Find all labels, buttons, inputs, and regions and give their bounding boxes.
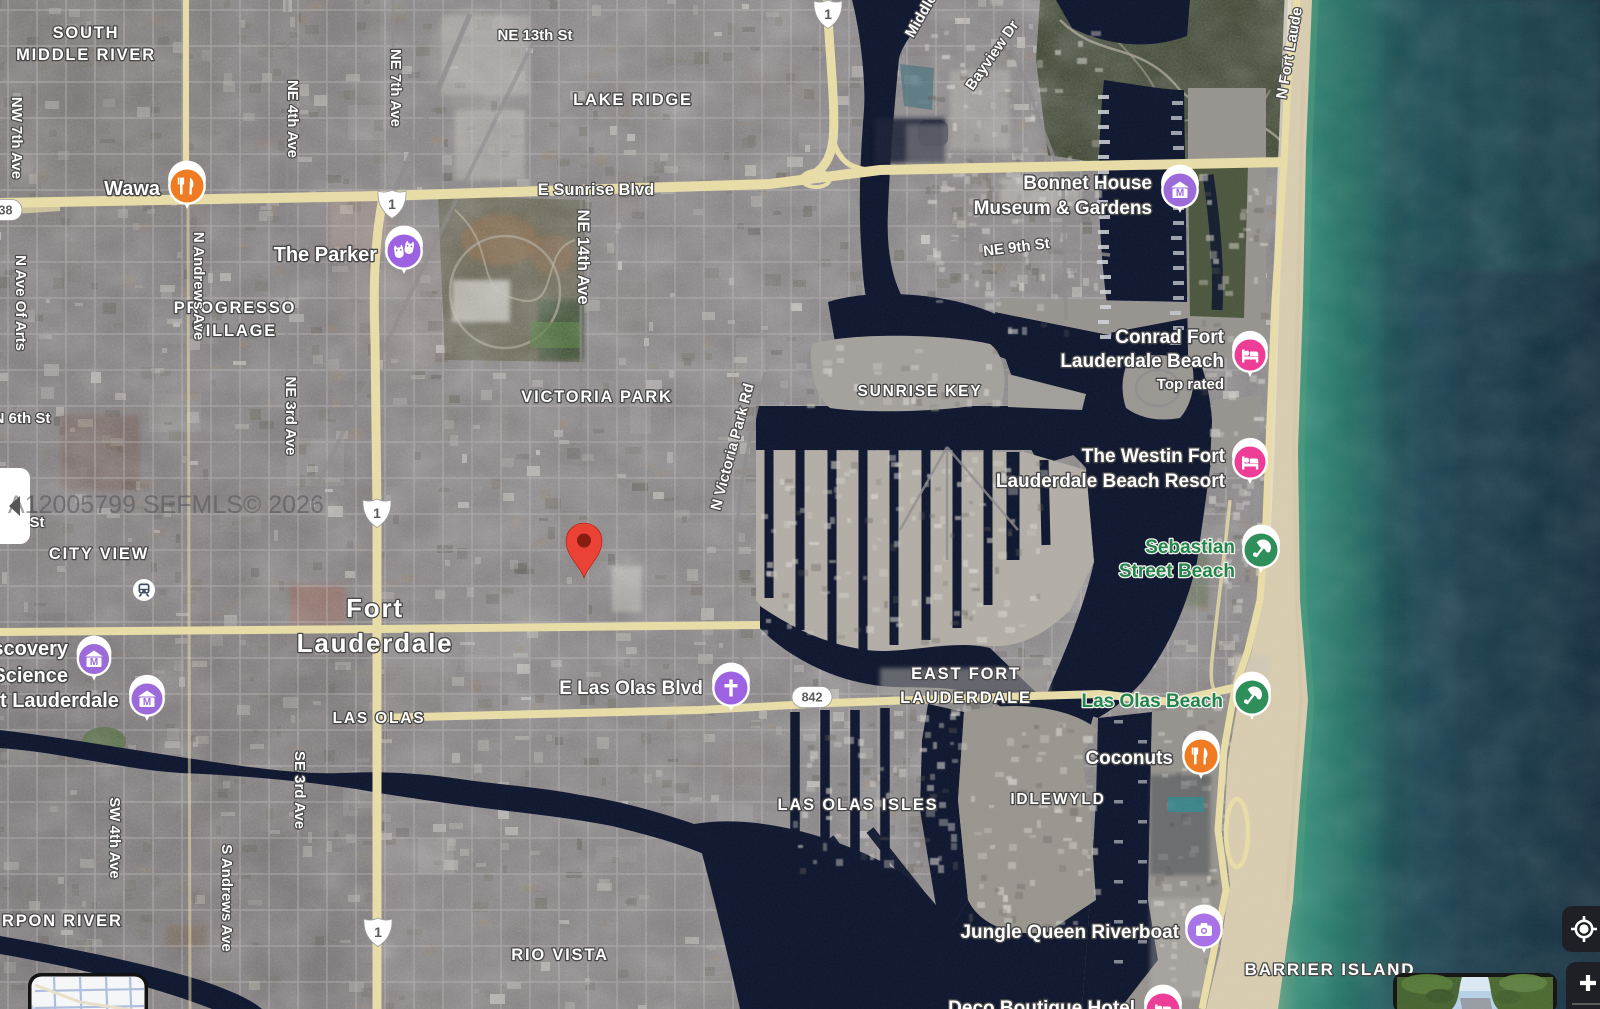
svg-text:NW 7th Ave: NW 7th Ave bbox=[8, 97, 25, 179]
svg-text:The Parker: The Parker bbox=[274, 244, 378, 266]
svg-text:1: 1 bbox=[374, 924, 382, 940]
svg-text:A1: A1 bbox=[8, 491, 39, 519]
svg-text:E Sunrise Blvd: E Sunrise Blvd bbox=[538, 181, 654, 199]
svg-text:EAST FORT: EAST FORT bbox=[911, 665, 1021, 683]
svg-text:SOUTH: SOUTH bbox=[53, 24, 120, 42]
svg-text:N Andrews Ave: N Andrews Ave bbox=[190, 232, 207, 340]
svg-text:A12005799 SEFMLS© 2026: A12005799 SEFMLS© 2026 bbox=[8, 491, 324, 519]
svg-text:RIO VISTA: RIO VISTA bbox=[511, 946, 608, 964]
svg-text:N 6th St: N 6th St bbox=[0, 410, 50, 427]
svg-text:Wawa: Wawa bbox=[104, 178, 161, 200]
svg-text:Jungle Queen Riverboat: Jungle Queen Riverboat bbox=[960, 922, 1179, 943]
svg-text:1: 1 bbox=[388, 196, 396, 212]
svg-text:1: 1 bbox=[824, 6, 832, 22]
svg-text:Lauderdale Beach Resort: Lauderdale Beach Resort bbox=[996, 471, 1226, 492]
svg-text:VICTORIA PARK: VICTORIA PARK bbox=[521, 388, 672, 406]
svg-text:E Las Olas Blvd: E Las Olas Blvd bbox=[559, 678, 703, 699]
svg-text:Street Beach: Street Beach bbox=[1119, 561, 1235, 582]
svg-text:Bonnet House: Bonnet House bbox=[1023, 173, 1152, 194]
svg-text:LAS OLAS ISLES: LAS OLAS ISLES bbox=[778, 796, 939, 814]
svg-text:BARRIER ISLAND: BARRIER ISLAND bbox=[1245, 960, 1416, 979]
svg-text:NE 4th Ave: NE 4th Ave bbox=[284, 80, 301, 158]
svg-text:M: M bbox=[143, 697, 151, 708]
svg-text:Lauderdale Beach: Lauderdale Beach bbox=[1060, 351, 1224, 372]
svg-text:Sebastian: Sebastian bbox=[1145, 537, 1235, 558]
svg-text:LAKE RIDGE: LAKE RIDGE bbox=[573, 91, 693, 109]
svg-text:NE 3rd Ave: NE 3rd Ave bbox=[282, 377, 299, 456]
svg-text:NE 14th Ave: NE 14th Ave bbox=[574, 209, 592, 304]
svg-text:S Andrews Ave: S Andrews Ave bbox=[218, 844, 235, 952]
svg-text:Museum & Gardens: Museum & Gardens bbox=[974, 198, 1152, 219]
svg-text:Top rated: Top rated bbox=[1157, 376, 1224, 393]
svg-text:SUNRISE KEY: SUNRISE KEY bbox=[858, 383, 983, 400]
svg-text:t Lauderdale: t Lauderdale bbox=[0, 690, 119, 712]
svg-text:Deco Boutique Hotel: Deco Boutique Hotel bbox=[948, 998, 1135, 1009]
svg-text:CITY VIEW: CITY VIEW bbox=[49, 545, 149, 563]
svg-text:N Ave Of Arts: N Ave Of Arts bbox=[12, 255, 29, 351]
svg-text:The Westin Fort: The Westin Fort bbox=[1082, 446, 1226, 467]
svg-text:SE 3rd Ave: SE 3rd Ave bbox=[291, 751, 308, 829]
svg-text:Lauderdale: Lauderdale bbox=[297, 628, 454, 658]
svg-text:MIDDLE RIVER: MIDDLE RIVER bbox=[16, 46, 156, 64]
svg-text:Coconuts: Coconuts bbox=[1085, 748, 1173, 769]
svg-text:NE 7th Ave: NE 7th Ave bbox=[387, 49, 404, 127]
svg-text:1: 1 bbox=[373, 505, 381, 521]
svg-text:IDLEWYLD: IDLEWYLD bbox=[1010, 791, 1105, 808]
svg-text:SW 4th Ave: SW 4th Ave bbox=[106, 797, 123, 878]
svg-text:Conrad Fort: Conrad Fort bbox=[1115, 327, 1224, 348]
svg-text:Science: Science bbox=[0, 665, 68, 687]
svg-text:842: 842 bbox=[802, 691, 823, 705]
svg-text:LAS OLAS: LAS OLAS bbox=[333, 710, 426, 727]
svg-text:RPON RIVER: RPON RIVER bbox=[2, 912, 123, 930]
svg-text:838: 838 bbox=[0, 204, 12, 218]
svg-text:Fort: Fort bbox=[346, 593, 404, 623]
svg-text:Las Olas Beach: Las Olas Beach bbox=[1081, 691, 1223, 712]
svg-text:NE 13th St: NE 13th St bbox=[497, 27, 572, 44]
svg-text:Discovery: Discovery bbox=[0, 638, 69, 660]
svg-text:M: M bbox=[1176, 188, 1184, 199]
svg-text:M: M bbox=[90, 657, 98, 668]
svg-text:LAUDERDALE: LAUDERDALE bbox=[900, 689, 1032, 707]
